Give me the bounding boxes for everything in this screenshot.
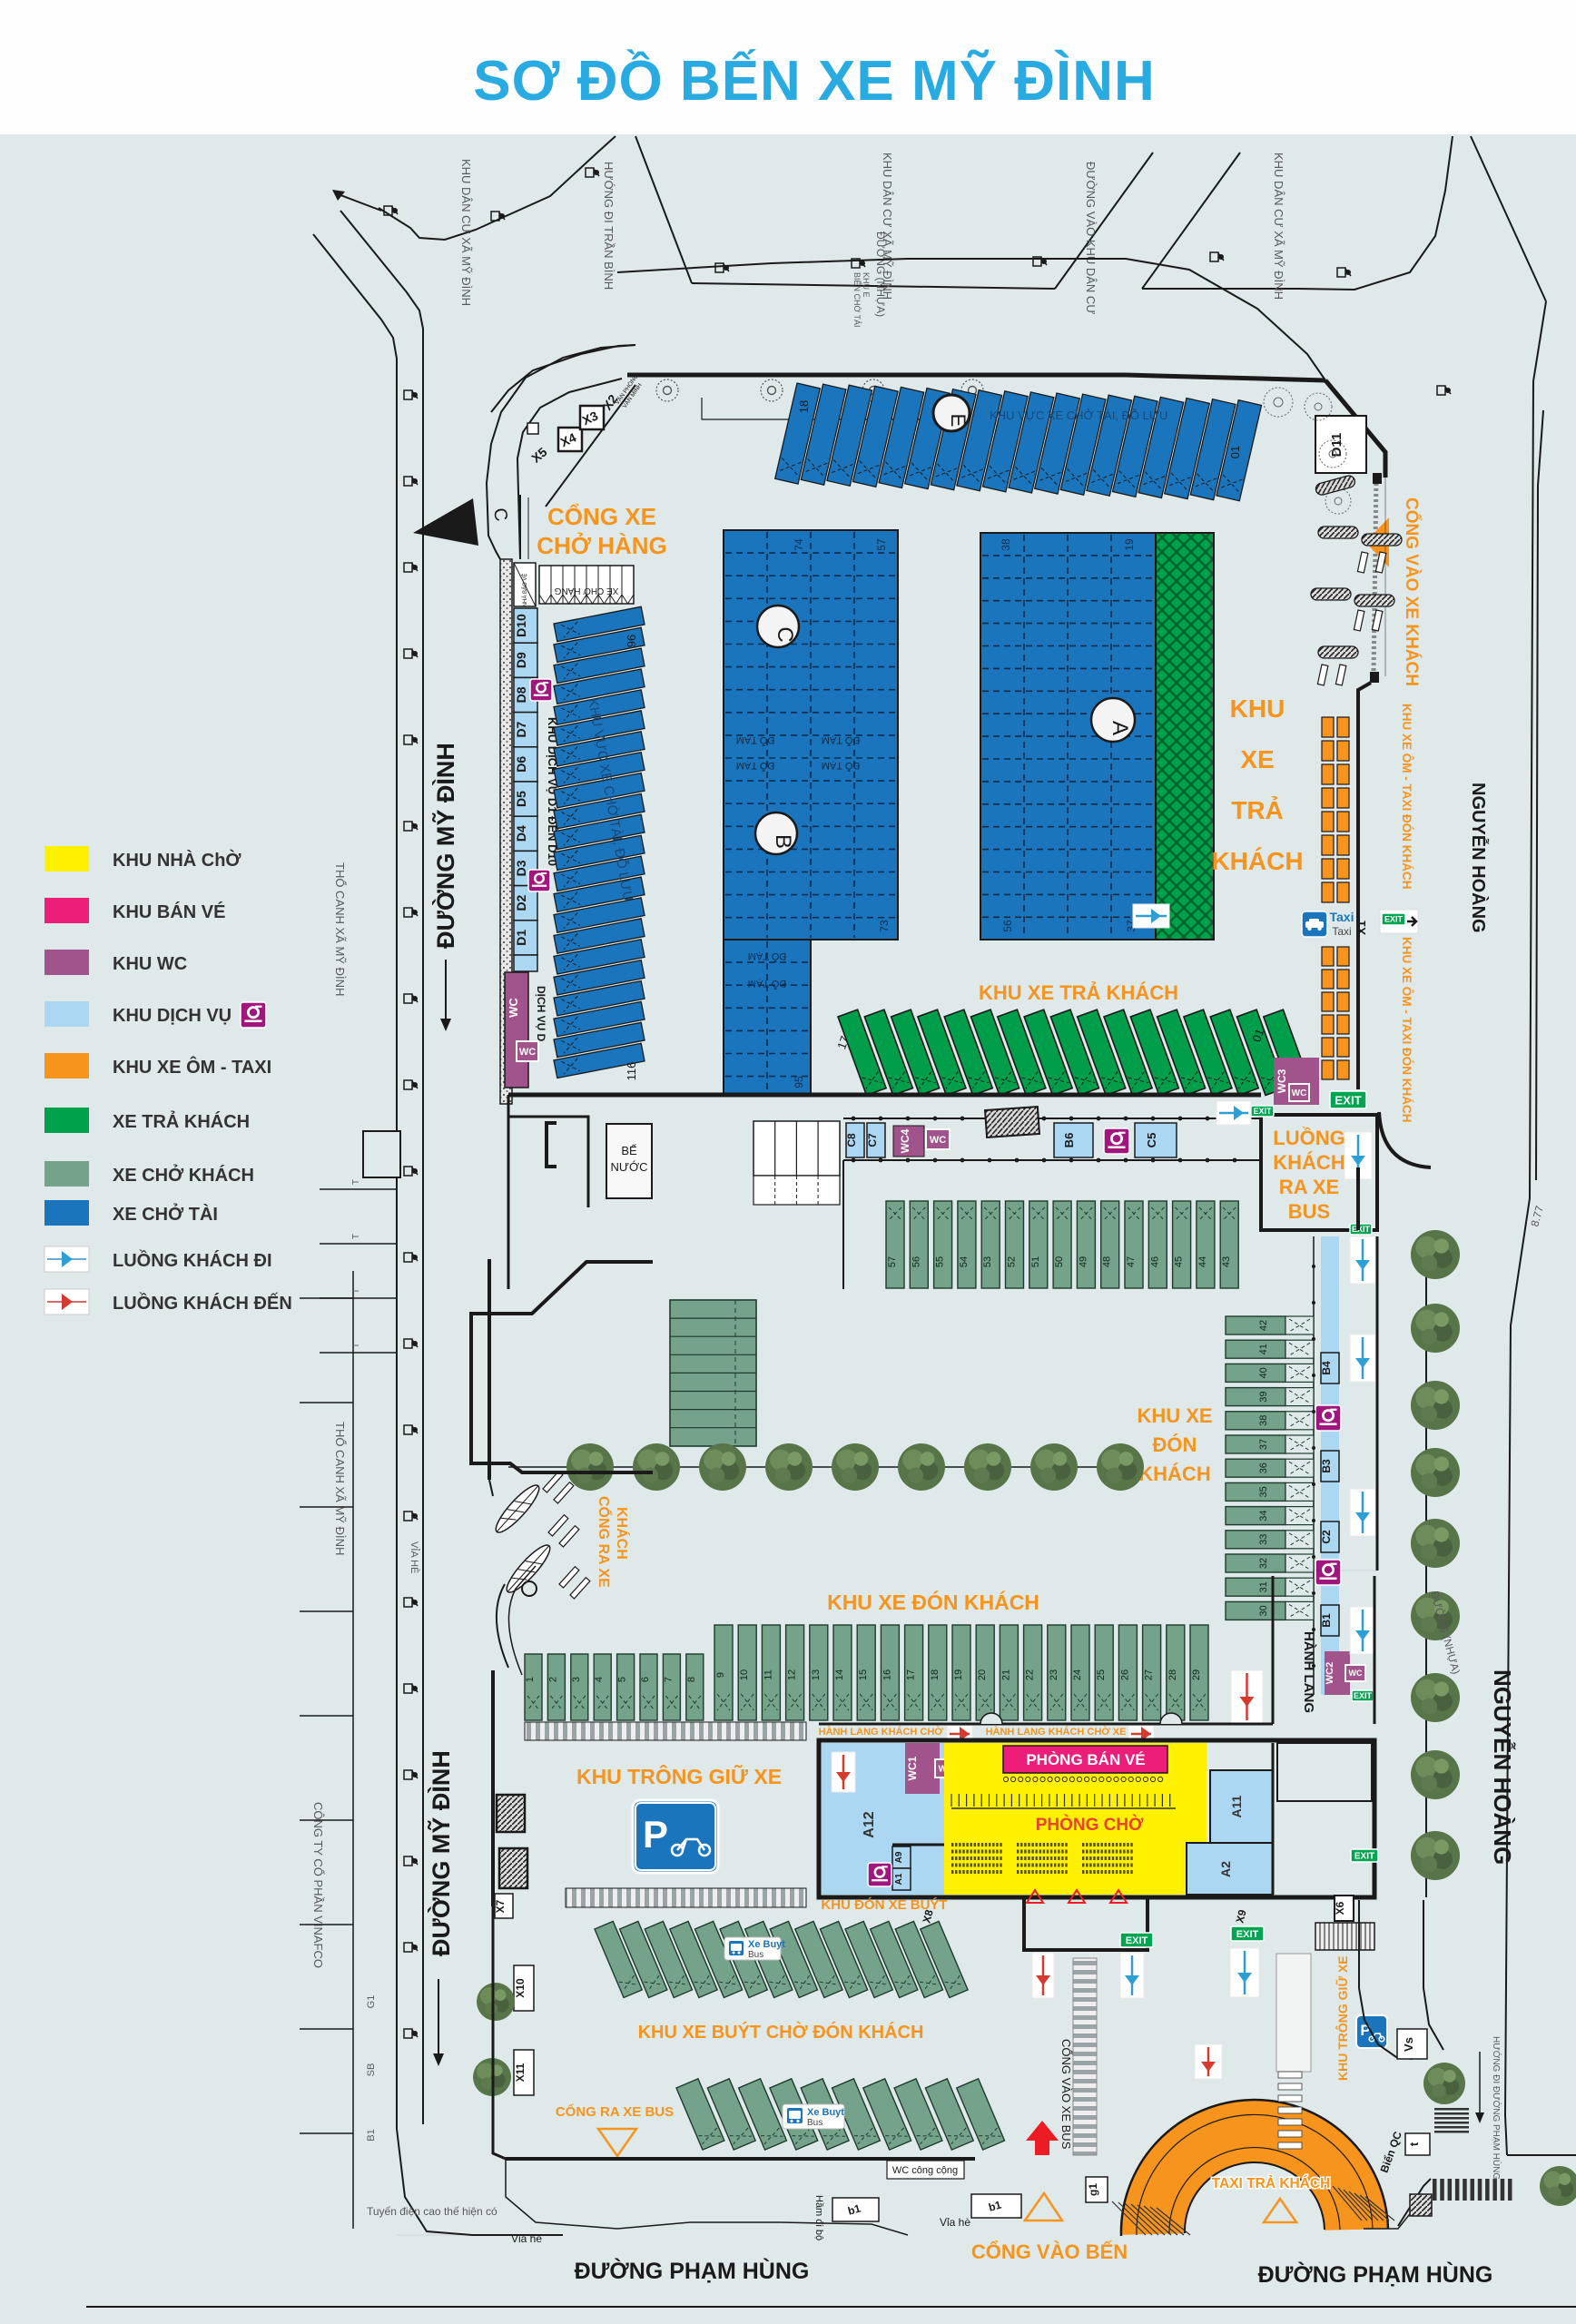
svg-text:KHU TRÔNG GIỮ XE: KHU TRÔNG GIỮ XE (1335, 1955, 1350, 2081)
svg-text:SƠ ĐỒ BẾN XE MỸ ĐÌNH: SƠ ĐỒ BẾN XE MỸ ĐÌNH (473, 50, 1156, 113)
svg-text:38: 38 (1258, 1415, 1269, 1426)
svg-text:ĐÓN: ĐÓN (1153, 1433, 1197, 1456)
svg-text:WC: WC (930, 1135, 946, 1146)
svg-text:Taxi: Taxi (1330, 910, 1354, 924)
svg-text:KHÁCH: KHÁCH (614, 1507, 631, 1560)
svg-text:D8: D8 (514, 686, 528, 703)
svg-text:ĐỖ TẠM: ĐỖ TẠM (736, 760, 775, 772)
svg-text:39: 39 (1258, 1391, 1269, 1402)
svg-text:Xe Buyt: Xe Buyt (748, 1939, 785, 1950)
svg-text:KHU XE: KHU XE (1137, 1404, 1212, 1427)
svg-text:P: P (1360, 2022, 1370, 2039)
svg-text:95: 95 (793, 1076, 805, 1088)
svg-text:X11: X11 (514, 2063, 527, 2082)
svg-text:CỔNG VÀO XE KHÁCH: CỔNG VÀO XE KHÁCH (1402, 497, 1422, 686)
svg-text:15: 15 (858, 1669, 869, 1680)
svg-text:D9: D9 (514, 652, 528, 668)
svg-text:D2: D2 (514, 894, 528, 911)
svg-text:CỔNG VÀO BẾN: CỔNG VÀO BẾN (971, 2240, 1128, 2263)
svg-text:KHU XE ÔM - TAXI ĐÓN KHÁCH: KHU XE ÔM - TAXI ĐÓN KHÁCH (1400, 937, 1413, 1123)
svg-text:KHU XE ÔM - TAXI: KHU XE ÔM - TAXI (113, 1056, 271, 1078)
svg-text:96: 96 (625, 635, 638, 647)
svg-text:B1: B1 (366, 2129, 377, 2141)
svg-text:ĐỖ TẠM: ĐỖ TẠM (748, 950, 787, 962)
svg-text:B4: B4 (1320, 1361, 1333, 1375)
svg-text:1: 1 (525, 1677, 536, 1682)
svg-text:10: 10 (739, 1669, 750, 1680)
svg-text:74: 74 (793, 538, 805, 551)
svg-text:11: 11 (763, 1669, 773, 1679)
svg-text:56: 56 (911, 1256, 921, 1267)
svg-text:T: T (351, 1234, 361, 1239)
svg-text:EXIT: EXIT (1126, 1935, 1148, 1946)
svg-text:HÀNH LANG: HÀNH LANG (1301, 1631, 1316, 1713)
svg-text:CỔNG VÀO XE BUS: CỔNG VÀO XE BUS (1059, 2039, 1073, 2150)
svg-text:30: 30 (1258, 1605, 1269, 1616)
svg-text:Hầm đi bộ: Hầm đi bộ (813, 2195, 824, 2240)
svg-text:5: 5 (617, 1677, 628, 1682)
svg-text:X6: X6 (1334, 1901, 1346, 1915)
svg-text:HƯỚNG ĐI ĐƯỜNG PHẠM HÙNG: HƯỚNG ĐI ĐƯỜNG PHẠM HÙNG (1491, 2036, 1502, 2180)
svg-text:Tuyến điện cao thế hiện có: Tuyến điện cao thế hiện có (367, 2205, 497, 2218)
svg-text:XE CHỞ HÀNG: XE CHỞ HÀNG (554, 586, 618, 597)
svg-text:ĐƯỜNG MỸ ĐÌNH: ĐƯỜNG MỸ ĐÌNH (431, 743, 459, 949)
svg-text:KHU: KHU (1230, 694, 1285, 723)
svg-text:8: 8 (686, 1677, 697, 1682)
svg-text:B1: B1 (1320, 1613, 1333, 1628)
svg-text:49: 49 (1078, 1256, 1088, 1267)
svg-text:B6: B6 (1062, 1133, 1076, 1148)
svg-text:27: 27 (1144, 1669, 1155, 1680)
svg-text:LUỒNG KHÁCH ĐẾN: LUỒNG KHÁCH ĐẾN (113, 1292, 292, 1314)
svg-text:A11: A11 (1229, 1795, 1244, 1817)
svg-text:42: 42 (1258, 1320, 1269, 1331)
svg-text:D4: D4 (514, 825, 528, 842)
svg-text:EXIT: EXIT (1354, 1852, 1374, 1862)
svg-text:BUS: BUS (1288, 1200, 1330, 1223)
svg-text:37: 37 (1258, 1439, 1269, 1450)
svg-text:KHU WC: KHU WC (113, 954, 187, 974)
svg-text:Vỉa hè: Vỉa hè (940, 2216, 970, 2229)
svg-text:TAXI TRẢ KHÁCH: TAXI TRẢ KHÁCH (1212, 2176, 1331, 2191)
svg-text:28: 28 (1167, 1669, 1178, 1680)
svg-text:WC1: WC1 (906, 1756, 919, 1780)
svg-text:45: 45 (1174, 1256, 1185, 1267)
svg-text:A: A (1108, 721, 1132, 735)
svg-text:57: 57 (887, 1256, 898, 1267)
svg-text:EXIT: EXIT (1384, 915, 1404, 924)
svg-text:KHU XE TRẢ KHÁCH: KHU XE TRẢ KHÁCH (979, 981, 1178, 1004)
svg-text:E: E (947, 414, 970, 428)
svg-text:36: 36 (1258, 1462, 1269, 1473)
svg-text:23: 23 (1049, 1669, 1059, 1680)
svg-text:44: 44 (1197, 1256, 1208, 1267)
svg-text:EXIT: EXIT (1354, 1691, 1373, 1700)
svg-text:01: 01 (1228, 446, 1242, 458)
svg-text:35: 35 (1258, 1486, 1269, 1497)
svg-text:38: 38 (1000, 538, 1012, 551)
svg-text:XE TRẢ KHÁCH: XE TRẢ KHÁCH (113, 1111, 250, 1132)
svg-text:A1: A1 (894, 1873, 904, 1885)
svg-text:WC: WC (507, 998, 520, 1018)
svg-text:CÔNG TY CỔ PHẦN VINAFCO: CÔNG TY CỔ PHẦN VINAFCO (311, 1802, 325, 1968)
svg-text:29: 29 (1191, 1669, 1202, 1680)
svg-text:NHÀ BẢO VỆ: NHÀ BẢO VỆ (521, 574, 528, 607)
svg-text:12: 12 (787, 1669, 798, 1680)
svg-text:16: 16 (882, 1669, 892, 1680)
svg-text:EXIT: EXIT (1236, 1929, 1259, 1940)
svg-text:22: 22 (1025, 1669, 1036, 1680)
svg-text:Vỉa hè: Vỉa hè (511, 2232, 542, 2245)
svg-text:48: 48 (1102, 1256, 1113, 1267)
svg-text:B: B (771, 834, 795, 849)
svg-text:KHÁCH: KHÁCH (1138, 1462, 1210, 1485)
svg-text:32: 32 (1258, 1558, 1269, 1569)
svg-text:D11: D11 (1329, 433, 1345, 458)
svg-text:NƯỚC: NƯỚC (610, 1160, 647, 1174)
svg-text:HƯỚNG ĐI TRẦN BÌNH: HƯỚNG ĐI TRẦN BÌNH (602, 162, 616, 290)
svg-text:KHÁCH: KHÁCH (1211, 847, 1303, 875)
svg-text:DỊCH VỤ D: DỊCH VỤ D (535, 986, 547, 1042)
svg-text:PHÒNG BÁN VÉ: PHÒNG BÁN VÉ (1026, 1751, 1145, 1768)
svg-text:3: 3 (571, 1677, 582, 1682)
svg-text:CỔNG XE: CỔNG XE (547, 503, 656, 530)
svg-text:19: 19 (953, 1669, 964, 1680)
svg-text:ĐỖ TẠM: ĐỖ TẠM (822, 734, 861, 746)
svg-text:Bus: Bus (748, 1950, 763, 1960)
svg-text:KHU NHÀ ChỜ: KHU NHÀ ChỜ (113, 849, 241, 871)
svg-text:CHỞ HÀNG: CHỞ HÀNG (537, 531, 667, 559)
svg-text:33: 33 (1258, 1534, 1269, 1545)
svg-text:ĐƯỜNG PHẠM HÙNG: ĐƯỜNG PHẠM HÙNG (1258, 2260, 1493, 2288)
svg-text:D7: D7 (514, 721, 528, 737)
svg-text:LUỒNG: LUỒNG (1273, 1127, 1345, 1149)
svg-text:ĐỖ TẠM: ĐỖ TẠM (822, 760, 861, 772)
svg-text:KHU E: KHU E (862, 272, 871, 298)
svg-text:53: 53 (982, 1256, 993, 1267)
svg-text:WC4: WC4 (899, 1128, 911, 1153)
svg-text:56: 56 (1001, 920, 1014, 932)
svg-text:HÀNH LANG KHÁCH CHỜ XE: HÀNH LANG KHÁCH CHỜ XE (819, 1726, 960, 1738)
svg-text:THỔ CANH XÃ MỸ ĐÌNH: THỔ CANH XÃ MỸ ĐÌNH (333, 1422, 347, 1555)
svg-text:WC: WC (1292, 1088, 1307, 1098)
svg-text:14: 14 (834, 1669, 845, 1680)
svg-text:t: t (1407, 2142, 1421, 2146)
svg-text:34: 34 (1258, 1510, 1269, 1521)
svg-text:Vs: Vs (1402, 2037, 1415, 2052)
svg-text:G1: G1 (366, 1995, 377, 2009)
svg-text:THỔ CANH XÃ MỸ ĐÌNH: THỔ CANH XÃ MỸ ĐÌNH (333, 862, 347, 996)
svg-text:D10: D10 (514, 614, 528, 637)
svg-text:T: T (351, 1179, 361, 1185)
svg-text:C7: C7 (866, 1133, 879, 1147)
svg-text:ĐỖ TẠM: ĐỖ TẠM (736, 734, 775, 746)
svg-text:NGUYỄN HOÀNG: NGUYỄN HOÀNG (1468, 783, 1489, 933)
svg-text:g1: g1 (1087, 2183, 1099, 2196)
svg-text:18: 18 (797, 400, 811, 413)
svg-text:Taxi: Taxi (1332, 925, 1351, 938)
svg-text:WC3: WC3 (1276, 1068, 1288, 1093)
svg-text:TRẢ: TRẢ (1231, 795, 1284, 824)
svg-text:KHU BÁN VÉ: KHU BÁN VÉ (113, 901, 225, 922)
svg-text:40: 40 (1258, 1367, 1269, 1378)
svg-text:KHU DÂN CƯ XÃ MỸ ĐÌNH: KHU DÂN CƯ XÃ MỸ ĐÌNH (1272, 153, 1285, 300)
svg-text:24: 24 (1072, 1669, 1083, 1680)
svg-text:KHÁCH: KHÁCH (1273, 1151, 1345, 1174)
svg-text:A2: A2 (1218, 1861, 1233, 1877)
svg-text:6: 6 (640, 1677, 651, 1682)
svg-text:CỔNG RA XE BUS: CỔNG RA XE BUS (556, 2103, 674, 2120)
svg-text:50: 50 (1054, 1256, 1065, 1267)
svg-text:WC: WC (1349, 1669, 1363, 1678)
svg-text:D1: D1 (514, 930, 528, 946)
svg-text:17: 17 (906, 1669, 917, 1680)
svg-text:ĐỖ TẠM: ĐỖ TẠM (748, 978, 787, 990)
svg-text:18: 18 (930, 1669, 941, 1680)
svg-text:RA XE: RA XE (1279, 1176, 1339, 1198)
svg-text:55: 55 (935, 1256, 946, 1267)
svg-text:51: 51 (1030, 1256, 1041, 1267)
svg-text:21: 21 (1000, 1669, 1011, 1680)
svg-text:CỔNG RA XE: CỔNG RA XE (596, 1496, 613, 1588)
svg-text:BẾ: BẾ (621, 1144, 637, 1157)
svg-text:T: T (351, 1343, 361, 1348)
svg-text:HÀNH LANG KHÁCH CHỜ XE: HÀNH LANG KHÁCH CHỜ XE (986, 1726, 1127, 1738)
svg-text:43: 43 (1221, 1256, 1232, 1267)
svg-text:KHU XE BUÝT CHỜ ĐÓN KHÁCH: KHU XE BUÝT CHỜ ĐÓN KHÁCH (638, 2021, 924, 2043)
svg-text:73: 73 (878, 920, 891, 932)
svg-text:ĐƯỜNG MỸ ĐÌNH: ĐƯỜNG MỸ ĐÌNH (427, 1750, 455, 1956)
svg-text:46: 46 (1149, 1256, 1160, 1267)
svg-text:ĐƯỜNG VÀO KHU DÂN CƯ: ĐƯỜNG VÀO KHU DÂN CƯ (1084, 162, 1098, 314)
svg-text:4: 4 (594, 1677, 605, 1682)
svg-text:20: 20 (977, 1669, 988, 1680)
svg-text:LUỒNG KHÁCH ĐI: LUỒNG KHÁCH ĐI (113, 1249, 272, 1271)
svg-text:25: 25 (1096, 1669, 1107, 1680)
svg-text:X10: X10 (514, 1978, 527, 1998)
svg-text:B3: B3 (1320, 1459, 1333, 1473)
svg-text:7: 7 (663, 1677, 674, 1682)
svg-text:D3: D3 (514, 860, 528, 876)
svg-text:Xe Buyt: Xe Buyt (807, 2107, 844, 2118)
svg-text:ĐƯỜNG PHẠM HÙNG: ĐƯỜNG PHẠM HÙNG (575, 2257, 810, 2284)
svg-text:C: C (773, 626, 797, 642)
svg-text:47: 47 (1126, 1256, 1137, 1267)
svg-text:A12: A12 (862, 1811, 877, 1837)
svg-text:Bus: Bus (807, 2118, 822, 2128)
svg-text:X7: X7 (494, 1899, 507, 1913)
svg-text:52: 52 (1007, 1256, 1018, 1267)
svg-text:C2: C2 (1320, 1530, 1333, 1544)
svg-text:WC: WC (519, 1047, 536, 1058)
svg-text:P: P (643, 1813, 668, 1856)
svg-text:XE CHỞ TÀI: XE CHỞ TÀI (113, 1203, 218, 1225)
svg-text:41: 41 (1258, 1344, 1269, 1354)
svg-text:XE: XE (1240, 745, 1274, 773)
svg-text:54: 54 (959, 1256, 970, 1267)
svg-text:26: 26 (1119, 1669, 1130, 1680)
svg-text:C5: C5 (1145, 1133, 1158, 1148)
svg-text:EXIT: EXIT (1335, 1093, 1362, 1107)
svg-text:WC2: WC2 (1325, 1662, 1335, 1684)
svg-text:2: 2 (547, 1677, 558, 1682)
svg-text:T: T (351, 1288, 361, 1294)
svg-text:VỈA HÈ: VỈA HÈ (409, 1541, 420, 1573)
svg-text:9: 9 (715, 1672, 726, 1678)
svg-text:BIỂN CHỜ TẢI: BIỂN CHỜ TẢI (852, 272, 862, 328)
svg-text:A9: A9 (894, 1851, 904, 1863)
svg-text:WC công cộng: WC công cộng (892, 2165, 958, 2176)
svg-text:31: 31 (1258, 1581, 1269, 1592)
svg-text:57: 57 (875, 538, 888, 551)
svg-text:D5: D5 (514, 791, 528, 807)
svg-text:116: 116 (625, 1062, 638, 1081)
svg-text:NGUYỄN HOÀNG: NGUYỄN HOÀNG (1489, 1669, 1516, 1865)
svg-text:KHU VỰC XE CHỞ TÀI, ĐỖ LƯU: KHU VỰC XE CHỞ TÀI, ĐỖ LƯU (990, 409, 1167, 422)
svg-text:XE CHỞ KHÁCH: XE CHỞ KHÁCH (113, 1164, 254, 1186)
svg-text:KHU TRÔNG GIỮ XE: KHU TRÔNG GIỮ XE (576, 1764, 782, 1788)
svg-text:EXIT: EXIT (1352, 1225, 1371, 1234)
svg-text:13: 13 (811, 1669, 822, 1680)
svg-text:SB: SB (366, 2063, 377, 2077)
svg-text:KHU DỊCH VỤ: KHU DỊCH VỤ (113, 1006, 231, 1026)
svg-text:EXIT: EXIT (1253, 1107, 1272, 1116)
svg-text:ĐƯỜNG (NHỰA): ĐƯỜNG (NHỰA) (874, 231, 888, 317)
svg-text:KHU XE ÔM - TAXI ĐÓN KHÁCH: KHU XE ÔM - TAXI ĐÓN KHÁCH (1400, 704, 1413, 890)
svg-text:19: 19 (1123, 538, 1136, 551)
svg-text:KHU XE ĐÓN KHÁCH: KHU XE ĐÓN KHÁCH (827, 1590, 1039, 1614)
svg-text:KHU DÂN CƯ XÃ MỸ ĐÌNH: KHU DÂN CƯ XÃ MỸ ĐÌNH (459, 159, 473, 306)
svg-text:C8: C8 (845, 1133, 858, 1147)
svg-text:PHÒNG CHỜ: PHÒNG CHỜ (1036, 1815, 1144, 1835)
svg-text:D6: D6 (514, 756, 528, 773)
